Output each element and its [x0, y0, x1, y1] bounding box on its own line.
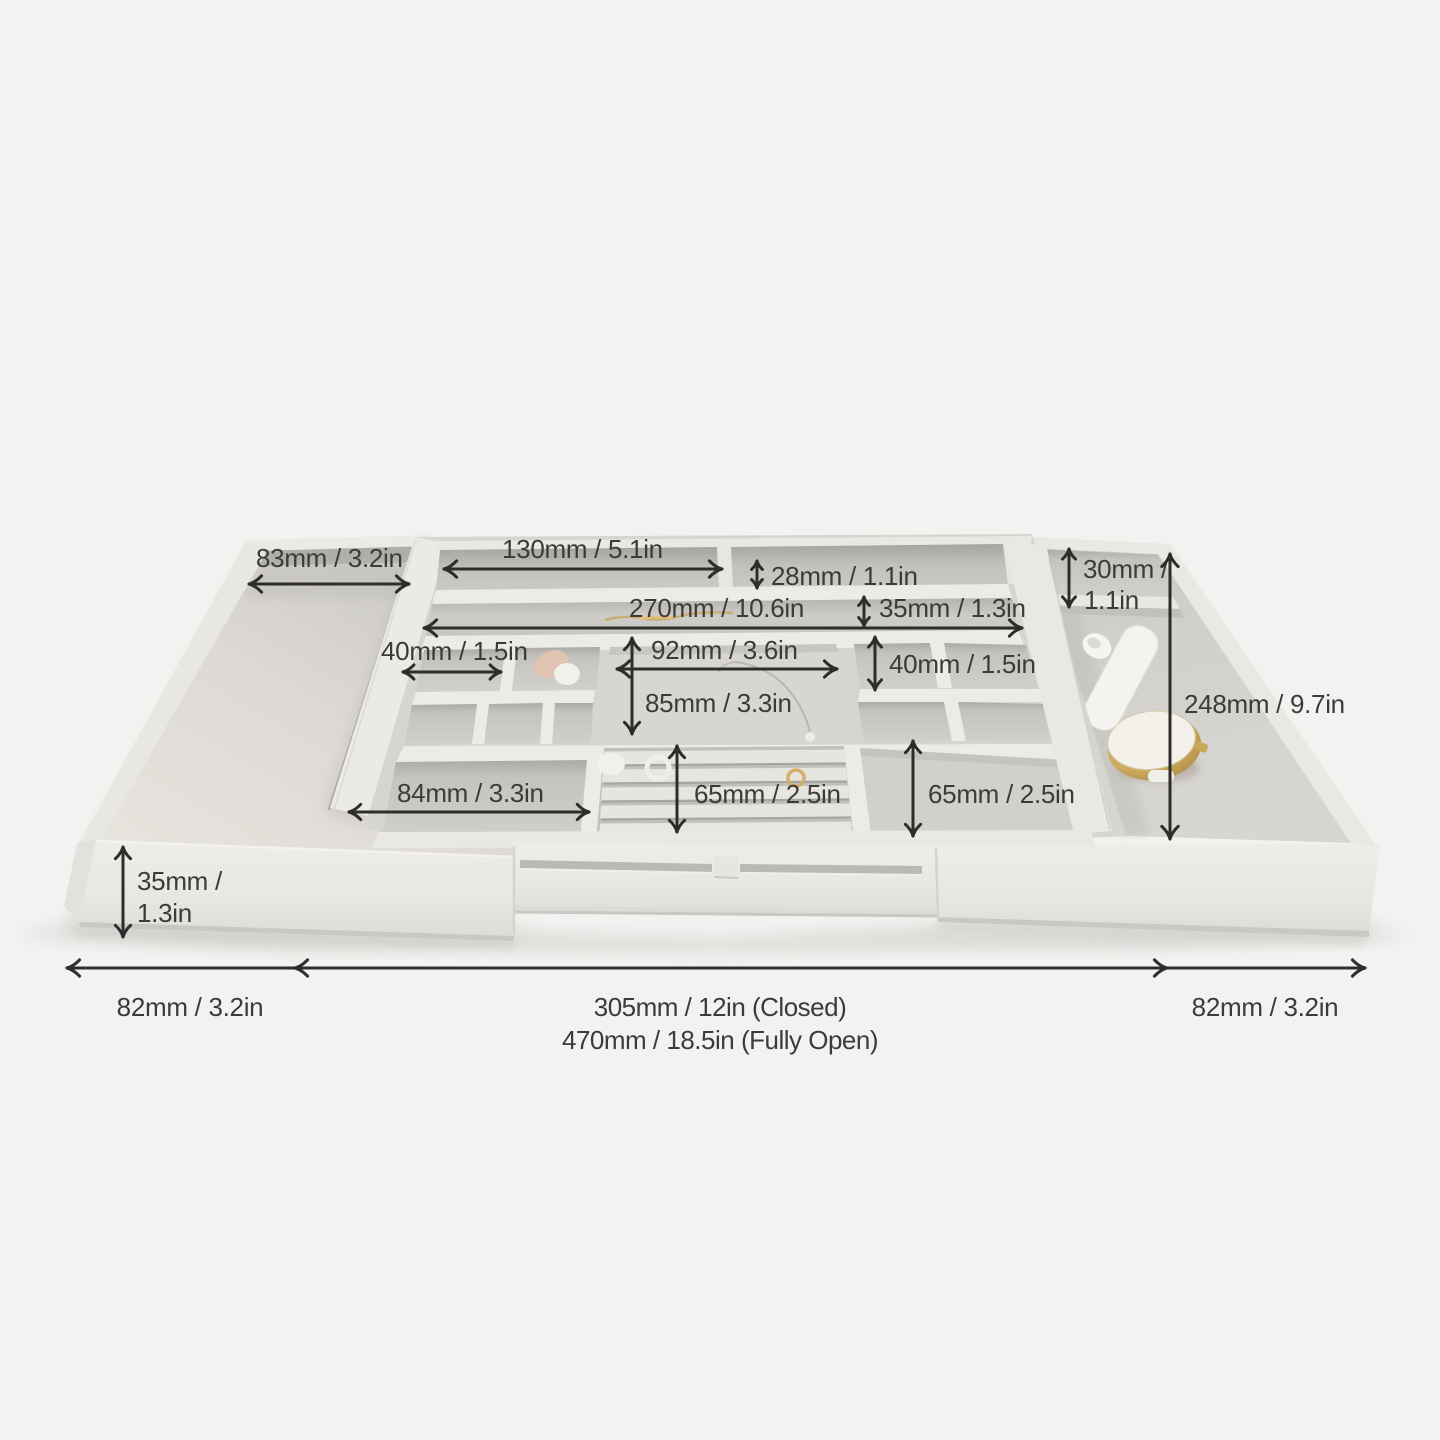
svg-text:82mm / 3.2in: 82mm / 3.2in — [1192, 992, 1339, 1022]
svg-text:30mm /: 30mm / — [1083, 554, 1169, 584]
svg-text:1.3in: 1.3in — [137, 898, 192, 928]
svg-text:305mm / 12in (Closed): 305mm / 12in (Closed) — [594, 992, 847, 1022]
svg-text:83mm / 3.2in: 83mm / 3.2in — [256, 543, 403, 573]
svg-text:130mm / 5.1in: 130mm / 5.1in — [502, 534, 663, 564]
svg-text:40mm / 1.5in: 40mm / 1.5in — [889, 649, 1036, 679]
svg-text:1.1in: 1.1in — [1084, 585, 1139, 615]
svg-text:40mm / 1.5in: 40mm / 1.5in — [381, 636, 528, 666]
svg-text:85mm / 3.3in: 85mm / 3.3in — [645, 688, 792, 718]
svg-text:248mm / 9.7in: 248mm / 9.7in — [1184, 689, 1345, 719]
svg-text:82mm / 3.2in: 82mm / 3.2in — [117, 992, 264, 1022]
svg-text:35mm /: 35mm / — [137, 866, 223, 896]
svg-text:65mm / 2.5in: 65mm / 2.5in — [928, 779, 1075, 809]
svg-text:65mm / 2.5in: 65mm / 2.5in — [694, 779, 841, 809]
svg-text:92mm / 3.6in: 92mm / 3.6in — [651, 635, 798, 665]
svg-text:28mm / 1.1in: 28mm / 1.1in — [771, 561, 918, 591]
svg-text:84mm / 3.3in: 84mm / 3.3in — [397, 778, 544, 808]
svg-text:35mm / 1.3in: 35mm / 1.3in — [879, 593, 1026, 623]
svg-text:470mm / 18.5in (Fully Open): 470mm / 18.5in (Fully Open) — [562, 1025, 878, 1055]
svg-text:270mm / 10.6in: 270mm / 10.6in — [629, 593, 804, 623]
